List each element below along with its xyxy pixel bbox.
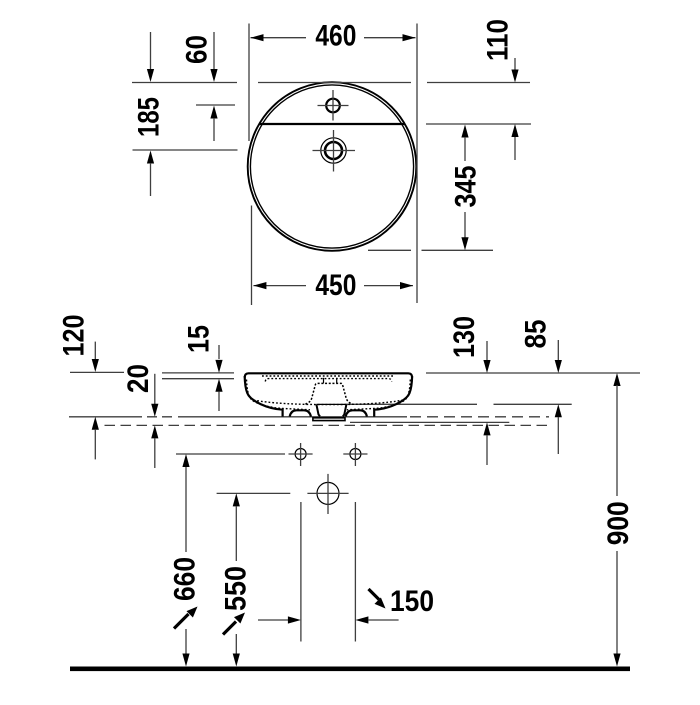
svg-text:60: 60 (181, 35, 214, 64)
svg-text:185: 185 (133, 97, 166, 137)
svg-text:130: 130 (448, 316, 481, 358)
svg-text:550: 550 (220, 566, 253, 611)
svg-text:150: 150 (390, 585, 434, 618)
svg-text:450: 450 (315, 269, 356, 302)
svg-text:85: 85 (520, 320, 553, 349)
svg-text:900: 900 (602, 501, 635, 545)
svg-text:460: 460 (315, 19, 356, 52)
svg-text:20: 20 (122, 364, 155, 393)
svg-text:660: 660 (169, 557, 202, 601)
svg-text:110: 110 (482, 19, 515, 61)
svg-text:345: 345 (450, 166, 483, 208)
svg-text:15: 15 (183, 325, 216, 353)
svg-text:120: 120 (58, 315, 91, 357)
